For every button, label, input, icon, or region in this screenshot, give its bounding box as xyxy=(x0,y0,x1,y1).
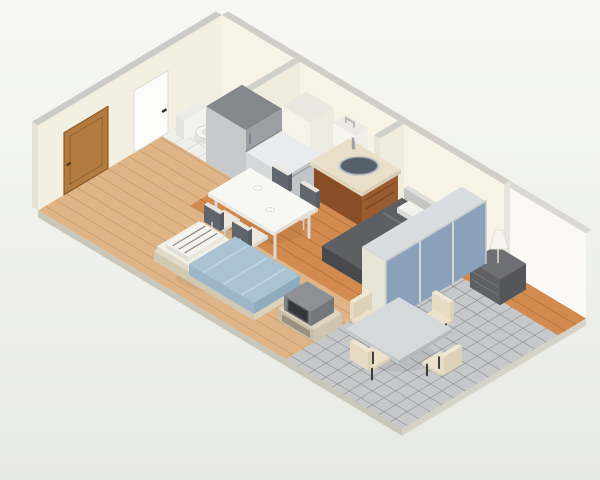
floorplan-canvas xyxy=(0,0,600,480)
floorplan-viewport xyxy=(0,0,600,480)
tableware-plate-2 xyxy=(266,208,275,212)
kitchen-sink[interactable] xyxy=(341,157,378,174)
wall-back-left-cap xyxy=(32,122,38,211)
door-wood-knob xyxy=(67,163,70,165)
tableware-plate-1 xyxy=(254,186,263,190)
door-white-handle xyxy=(163,110,166,112)
faucet xyxy=(353,138,354,149)
